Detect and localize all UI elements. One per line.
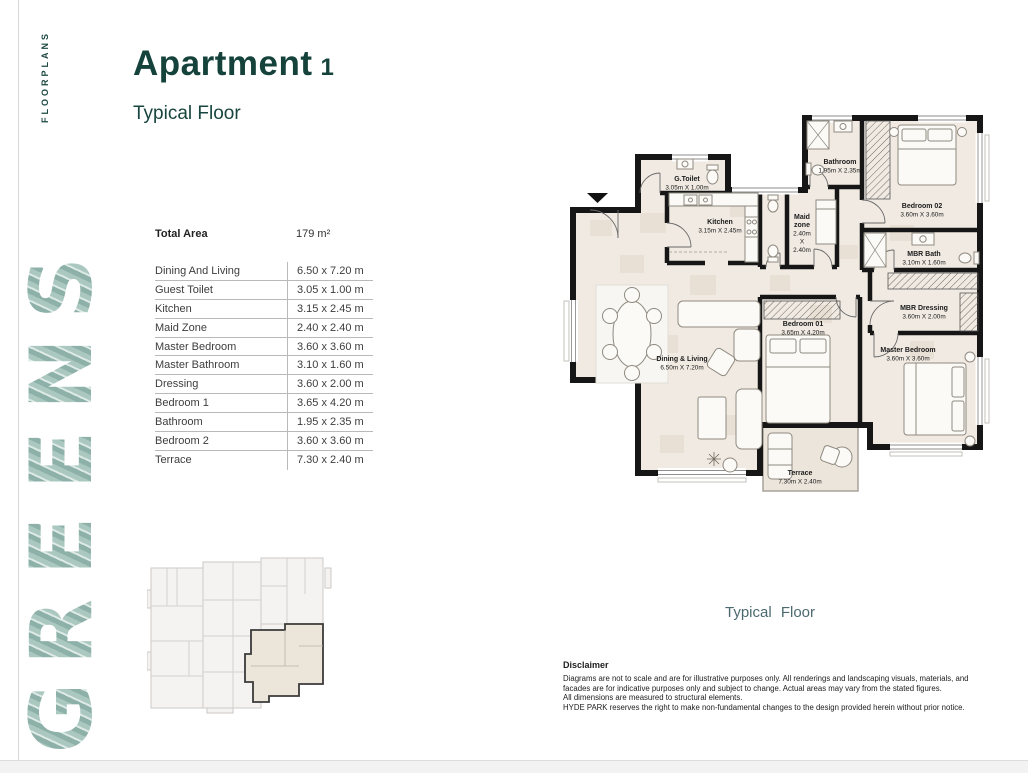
table-row: Guest Toilet3.05 x 1.00 m xyxy=(155,281,373,300)
svg-text:MBR Bath: MBR Bath xyxy=(907,251,940,258)
room-label-mbr-dressing: MBR Dressing 3.60m X 2.00m xyxy=(900,305,948,321)
row-label: Bedroom 2 xyxy=(155,432,287,450)
table-row: Dining And Living6.50 x 7.20 m xyxy=(155,262,373,281)
row-label: Maid Zone xyxy=(155,319,287,337)
svg-text:Terrace: Terrace xyxy=(788,470,813,477)
room-label-dining-living: Dining & Living 6.50m X 7.20m xyxy=(656,356,707,372)
table-row: Bedroom 23.60 x 3.60 m xyxy=(155,432,373,451)
page-title: Apartment1 xyxy=(133,44,334,84)
row-label: Bathroom xyxy=(155,413,287,431)
svg-text:3.60m X 3.60m: 3.60m X 3.60m xyxy=(900,212,943,219)
svg-text:3.10m X 1.60m: 3.10m X 1.60m xyxy=(902,260,945,267)
row-value: 6.50 x 7.20 m xyxy=(287,262,373,280)
svg-text:Maid: Maid xyxy=(794,214,810,221)
svg-text:2.40m: 2.40m xyxy=(793,231,811,238)
row-value: 7.30 x 2.40 m xyxy=(287,451,373,470)
svg-text:X: X xyxy=(800,239,805,246)
svg-text:3.65m X 4.20m: 3.65m X 4.20m xyxy=(781,330,824,337)
svg-text:G.Toilet: G.Toilet xyxy=(674,176,700,183)
svg-text:zone: zone xyxy=(794,222,810,229)
svg-text:3.60m X 2.00m: 3.60m X 2.00m xyxy=(902,314,945,321)
svg-text:1.95m X 2.35m: 1.95m X 2.35m xyxy=(818,168,861,175)
room-label-master-bedroom: Master Bedroom 3.60m X 3.60m xyxy=(880,347,935,363)
title-text: Apartment xyxy=(133,44,313,83)
entrance-marker-icon xyxy=(587,193,608,203)
row-label: Guest Toilet xyxy=(155,281,287,299)
page-bottom-edge xyxy=(0,760,1028,773)
row-value: 3.15 x 2.45 m xyxy=(287,300,373,318)
svg-text:7.30m X 2.40m: 7.30m X 2.40m xyxy=(778,479,821,486)
svg-text:3.05m X 1.00m: 3.05m X 1.00m xyxy=(665,185,708,192)
row-label: Terrace xyxy=(155,451,287,470)
svg-text:MBR Dressing: MBR Dressing xyxy=(900,305,948,312)
svg-text:3.15m X 2.45m: 3.15m X 2.45m xyxy=(698,228,741,235)
table-rows: Dining And Living6.50 x 7.20 m Guest Toi… xyxy=(155,262,373,470)
room-label-maid-zone: Maid zone 2.40m X 2.40m xyxy=(793,214,811,254)
table-row: Master Bathroom3.10 x 1.60 m xyxy=(155,356,373,375)
row-value: 2.40 x 2.40 m xyxy=(287,319,373,337)
row-label: Dining And Living xyxy=(155,262,287,280)
svg-text:Master Bedroom: Master Bedroom xyxy=(880,347,935,354)
row-label: Master Bathroom xyxy=(155,356,287,374)
disclaimer-line: HYDE PARK reserves the right to make non… xyxy=(563,703,948,713)
row-value: 1.95 x 2.35 m xyxy=(287,413,373,431)
svg-text:6.50m X 7.20m: 6.50m X 7.20m xyxy=(660,365,703,372)
svg-text:2.40m: 2.40m xyxy=(793,247,811,254)
table-row: Bathroom1.95 x 2.35 m xyxy=(155,413,373,432)
svg-text:Bathroom: Bathroom xyxy=(823,159,856,166)
table-row: Bedroom 13.65 x 4.20 m xyxy=(155,394,373,413)
total-area-value: 179 m² xyxy=(287,228,330,240)
disclaimer-line: facades are for indicative purposes only… xyxy=(563,684,948,694)
svg-text:Kitchen: Kitchen xyxy=(707,219,733,226)
svg-text:Dining & Living: Dining & Living xyxy=(656,356,707,363)
table-row: Master Bedroom3.60 x 3.60 m xyxy=(155,338,373,357)
total-area-row: Total Area 179 m² xyxy=(155,228,373,240)
room-label-bedroom-02: Bedroom 02 3.60m X 3.60m xyxy=(900,203,943,219)
key-plan-highlighted-unit xyxy=(245,624,323,702)
disclaimer-line: Diagrams are not to scale and are for il… xyxy=(563,674,948,684)
disclaimer: Disclaimer Diagrams are not to scale and… xyxy=(563,660,948,713)
table-row: Terrace7.30 x 2.40 m xyxy=(155,451,373,470)
table-row: Dressing3.60 x 2.00 m xyxy=(155,375,373,394)
key-plan xyxy=(147,556,345,716)
row-label: Bedroom 1 xyxy=(155,394,287,412)
row-value: 3.65 x 4.20 m xyxy=(287,394,373,412)
table-row: Kitchen3.15 x 2.45 m xyxy=(155,300,373,319)
row-label: Master Bedroom xyxy=(155,338,287,356)
page-subtitle: Typical Floor xyxy=(133,103,241,125)
title-number: 1 xyxy=(321,54,335,81)
disclaimer-line: All dimensions are measured to structura… xyxy=(563,693,948,703)
room-label-bedroom-01: Bedroom 01 3.65m X 4.20m xyxy=(781,321,824,337)
row-value: 3.60 x 3.60 m xyxy=(287,338,373,356)
room-label-bathroom: Bathroom 1.95m X 2.35m xyxy=(818,159,861,175)
logo-letter: G xyxy=(19,664,105,772)
room-label-mbr-bath: MBR Bath 3.10m X 1.60m xyxy=(902,251,945,267)
row-label: Dressing xyxy=(155,375,287,393)
row-value: 3.60 x 2.00 m xyxy=(287,375,373,393)
svg-text:Bedroom 01: Bedroom 01 xyxy=(783,321,824,328)
row-value: 3.05 x 1.00 m xyxy=(287,281,373,299)
disclaimer-title: Disclaimer xyxy=(563,660,948,670)
row-value: 3.10 x 1.60 m xyxy=(287,356,373,374)
svg-text:3.60m X 3.60m: 3.60m X 3.60m xyxy=(886,356,929,363)
plan-caption: Typical Floor xyxy=(690,604,850,621)
dimensions-table: Total Area 179 m² Dining And Living6.50 … xyxy=(155,228,373,470)
row-label: Kitchen xyxy=(155,300,287,318)
greens-logo: S N E E R G xyxy=(8,245,116,761)
row-value: 3.60 x 3.60 m xyxy=(287,432,373,450)
floor-plan: G.Toilet 3.05m X 1.00m Kitchen 3.15m X 2… xyxy=(560,105,990,505)
table-row: Maid Zone2.40 x 2.40 m xyxy=(155,319,373,338)
svg-text:Bedroom 02: Bedroom 02 xyxy=(902,203,943,210)
floorplans-vertical-label: FLOORPLANS xyxy=(40,31,50,123)
total-area-label: Total Area xyxy=(155,228,287,240)
